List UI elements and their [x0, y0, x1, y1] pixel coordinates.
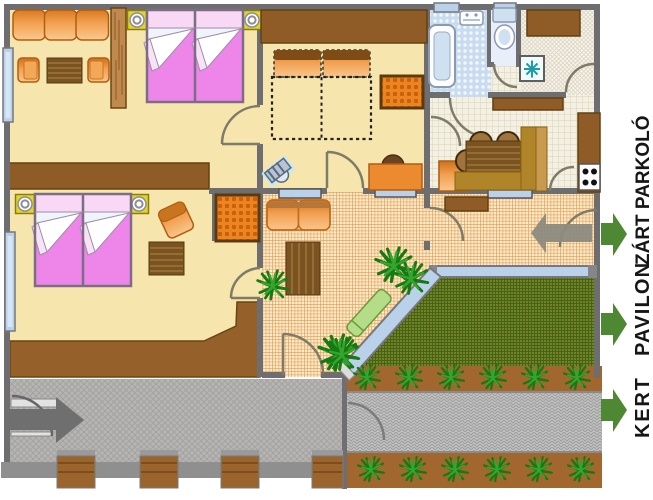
svg-text:KERT: KERT	[632, 376, 653, 438]
svg-text:ZÁRT PARKOLÓ: ZÁRT PARKOLÓ	[632, 115, 653, 265]
svg-text:PAVILON: PAVILON	[632, 262, 653, 356]
